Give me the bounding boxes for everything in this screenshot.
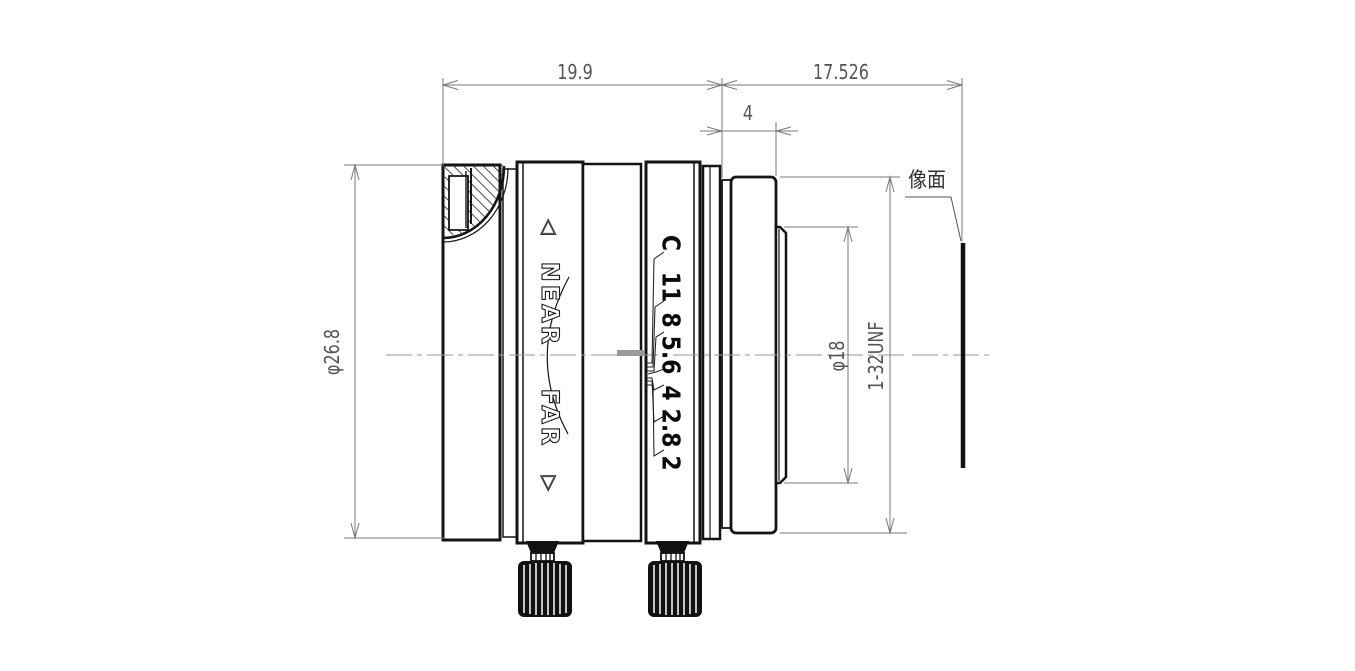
aperture-label-11: 11 [657,272,686,303]
front-neck-ring [503,169,517,537]
aperture-label-2-8: 2.8 [657,409,686,448]
dimension-flange-focal: 17.526 [813,60,869,84]
lens-body [443,162,786,543]
focus-near-label: NEAR [536,262,564,348]
lens-technical-drawing: 19.9 17.526 4 φ26.8 φ18 1-32UNF 像面 ◁ NEA… [0,0,1355,671]
thread-spec-label: 1-32UNF [864,321,888,390]
aperture-label-5-6: 5.6 [657,336,686,375]
far-marker-icon: ▷ [538,476,562,491]
dimension-barrel-diameter: φ26.8 [320,329,344,375]
focus-far-label: FAR [536,389,564,449]
aperture-label-2: 2 [657,455,686,470]
aperture-label-c: C [657,235,686,251]
thumbscrew-focus [518,541,572,617]
aperture-label-4: 4 [657,385,686,400]
thumbscrew-aperture [648,541,702,617]
dimension-front-length: 19.9 [557,60,593,84]
rear-ring [703,166,720,539]
aperture-label-8: 8 [657,312,686,327]
focus-ring-band: ◁ NEAR FAR ▷ [533,219,567,491]
dimension-thread-diameter: φ18 [825,341,849,372]
near-marker-icon: ◁ [538,219,562,234]
dimension-flange-width: 4 [743,101,753,125]
aperture-index-mark [617,350,645,356]
image-plane-label: 像面 [908,164,946,194]
